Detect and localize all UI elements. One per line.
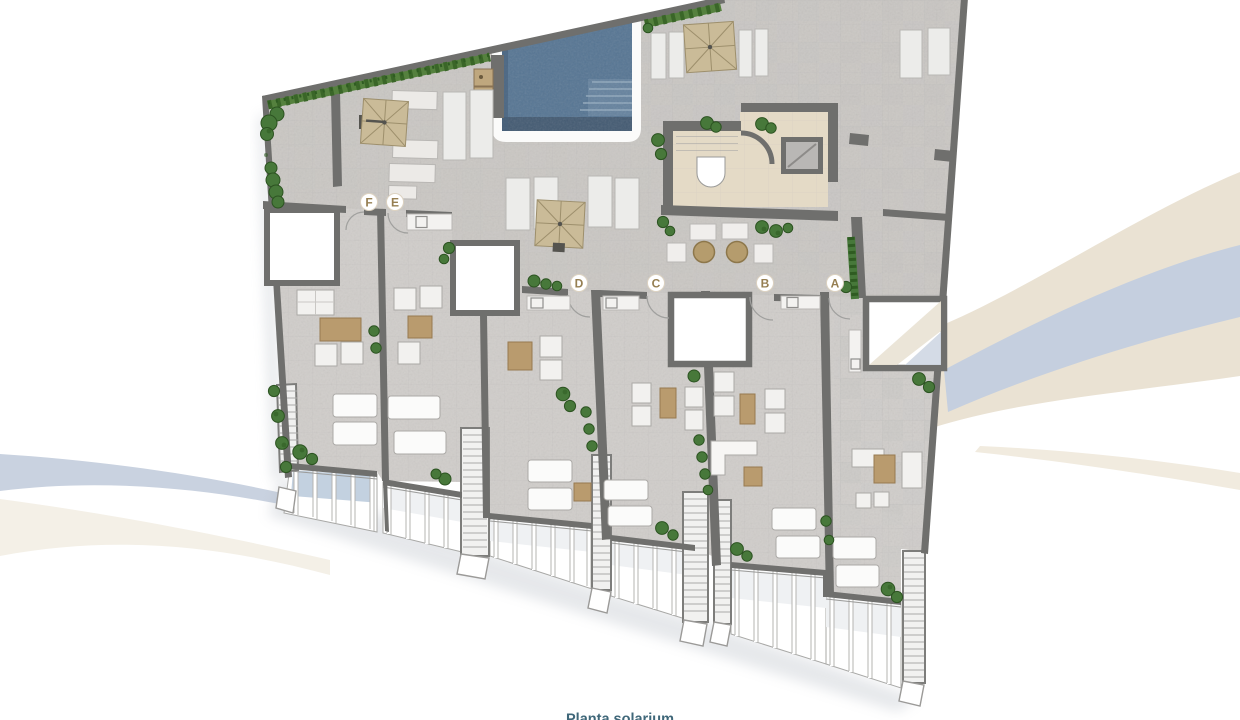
svg-text:A: A [831,277,840,291]
svg-text:B: B [761,277,770,291]
svg-text:E: E [391,196,399,210]
svg-text:D: D [575,277,584,291]
svg-text:Planta solarium: Planta solarium [566,712,674,720]
svg-text:F: F [365,196,372,210]
svg-text:C: C [652,277,661,291]
